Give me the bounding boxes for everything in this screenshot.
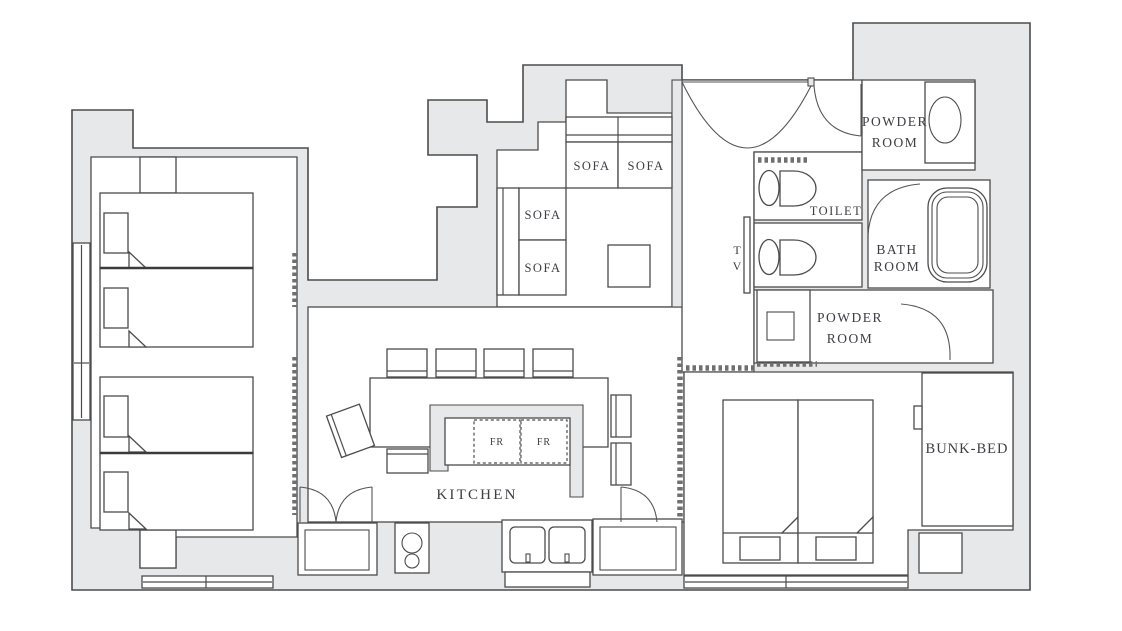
window-left <box>73 243 90 420</box>
tv-label-t: T <box>733 243 741 257</box>
sofa-label-3: SOFA <box>524 208 561 222</box>
bath-label-line2: ROOM <box>874 259 921 274</box>
chair <box>436 349 476 377</box>
bed-3 <box>100 377 253 453</box>
sofa-side-table <box>608 245 650 287</box>
fridge-label-1: FR <box>490 437 504 448</box>
tv-panel <box>744 217 750 293</box>
bed-1 <box>100 193 253 268</box>
powder-1-label-line2: ROOM <box>872 135 919 150</box>
sofa-back-left <box>497 188 519 295</box>
kitchen-sink <box>502 520 592 587</box>
powder-1-label-line1: POWDER <box>862 114 928 129</box>
bathtub <box>928 188 987 282</box>
window-bottom-left <box>142 576 273 588</box>
sofa-label-1: SOFA <box>573 159 610 173</box>
chair-bottom-left <box>387 449 428 473</box>
bunk-bed-label: BUNK-BED <box>926 441 1009 457</box>
closet-bottom-left <box>298 523 377 575</box>
bed-2 <box>100 268 253 347</box>
window-bottom-right <box>684 576 908 588</box>
closet-bottom-right <box>593 519 682 575</box>
floor-plan-svg: SOFA SOFA SOFA SOFA FR FR KITCHEN <box>0 0 1122 631</box>
nightstand-bedroom-right <box>919 533 962 573</box>
wall-patch-sofa-top <box>672 80 682 307</box>
floor-plan: SOFA SOFA SOFA SOFA FR FR KITCHEN <box>0 0 1122 631</box>
toilet-1 <box>759 171 816 207</box>
bed-6 <box>798 400 873 563</box>
chair <box>387 349 427 377</box>
bed-5 <box>723 400 798 563</box>
chair <box>611 443 631 485</box>
powder-2-label-line1: POWDER <box>817 310 883 325</box>
stove <box>395 523 429 573</box>
chair <box>533 349 573 377</box>
toilet-label: TOILET <box>810 204 863 218</box>
sofa-back-top <box>566 117 672 142</box>
kitchen-counter-inner <box>445 418 570 465</box>
bed-4 <box>100 453 253 530</box>
sofa-label-4: SOFA <box>524 261 561 275</box>
kitchen-label: KITCHEN <box>436 487 517 503</box>
tv-label-v: V <box>733 259 742 273</box>
fridge-label-2: FR <box>537 437 551 448</box>
chair <box>484 349 524 377</box>
vanity-powder-1 <box>925 82 975 163</box>
vanity-powder-2 <box>757 290 810 362</box>
chair <box>611 395 631 437</box>
entry-door-stub <box>808 78 814 86</box>
toilet-2 <box>759 240 816 276</box>
nightstand-bottom <box>140 530 176 568</box>
nightstand-top <box>140 157 176 193</box>
bath-label-line1: BATH <box>876 242 917 257</box>
powder-2-label-line2: ROOM <box>827 331 874 346</box>
sofa-label-2: SOFA <box>627 159 664 173</box>
